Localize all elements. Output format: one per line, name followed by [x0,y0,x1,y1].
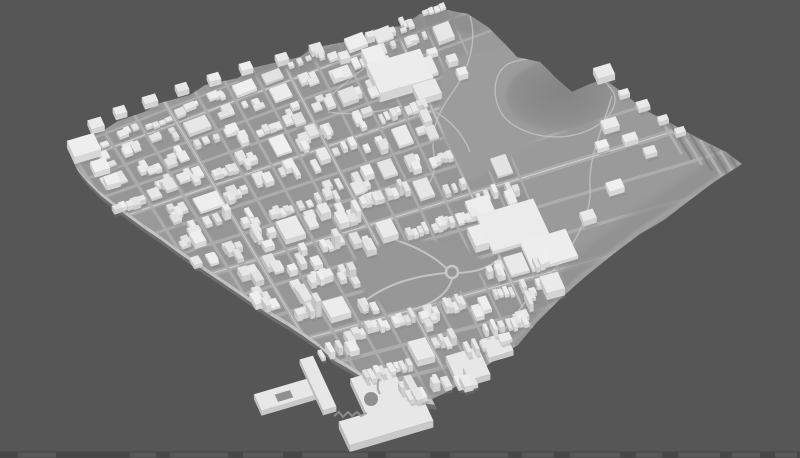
bottom-strip [0,452,800,458]
viewport [0,0,800,458]
pier-hole [364,392,378,406]
city-3d-render[interactable] [0,0,800,458]
